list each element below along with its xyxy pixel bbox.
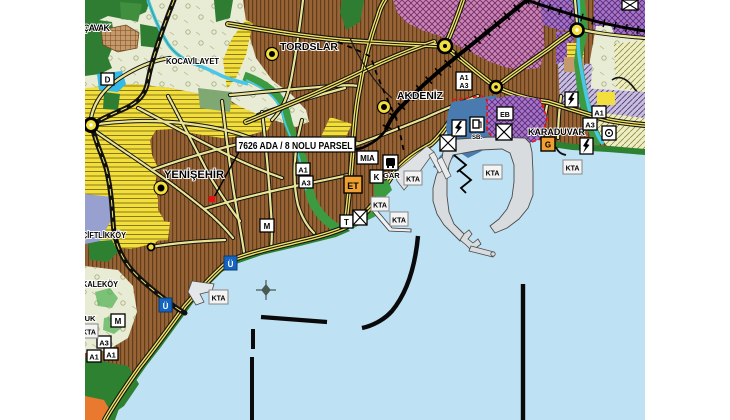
svg-text:G: G — [545, 141, 551, 150]
svg-text:A3: A3 — [301, 179, 311, 188]
svg-text:KTA: KTA — [392, 218, 406, 225]
svg-text:A1: A1 — [594, 109, 604, 118]
svg-text:MIA: MIA — [360, 154, 375, 163]
svg-text:A3: A3 — [460, 83, 469, 90]
svg-text:Ü: Ü — [228, 260, 234, 269]
svg-text:KALEKÖY: KALEKÖY — [82, 280, 119, 289]
svg-text:EB: EB — [500, 112, 510, 119]
svg-text:KTA: KTA — [212, 296, 226, 303]
svg-text:KTA: KTA — [406, 177, 420, 184]
svg-text:SB.: SB. — [472, 135, 482, 141]
svg-text:KTA: KTA — [373, 203, 387, 210]
svg-text:A3: A3 — [585, 121, 595, 130]
svg-text:ÇİFTLİKKÖY: ÇİFTLİKKÖY — [82, 231, 127, 240]
svg-text:T: T — [344, 218, 349, 227]
svg-text:A1: A1 — [460, 75, 469, 82]
svg-text:TORDSLAR: TORDSLAR — [280, 41, 338, 53]
svg-text:KTA: KTA — [486, 171, 500, 178]
svg-text:7626 ADA / 8 NOLU PARSEL: 7626 ADA / 8 NOLU PARSEL — [239, 141, 353, 152]
svg-text:ÇAVAK: ÇAVAK — [83, 23, 111, 33]
svg-text:KOCAVİLAYET: KOCAVİLAYET — [166, 57, 219, 66]
svg-text:GAR: GAR — [383, 171, 400, 180]
svg-text:KTA: KTA — [566, 166, 580, 173]
svg-text:A1: A1 — [106, 351, 116, 360]
svg-text:M: M — [264, 222, 271, 231]
svg-text:M: M — [115, 317, 122, 326]
svg-text:AKDENİZ: AKDENİZ — [397, 89, 443, 102]
svg-text:A1: A1 — [89, 353, 99, 362]
svg-text:Ü: Ü — [163, 302, 169, 311]
svg-text:A1: A1 — [298, 166, 308, 175]
svg-text:KARADUVAR: KARADUVAR — [528, 127, 585, 137]
svg-text:K: K — [374, 173, 380, 182]
svg-text:ET: ET — [347, 181, 359, 191]
svg-text:YENİŞEHİR: YENİŞEHİR — [164, 168, 224, 181]
svg-text:D: D — [105, 76, 111, 85]
svg-text:A3: A3 — [99, 339, 109, 348]
